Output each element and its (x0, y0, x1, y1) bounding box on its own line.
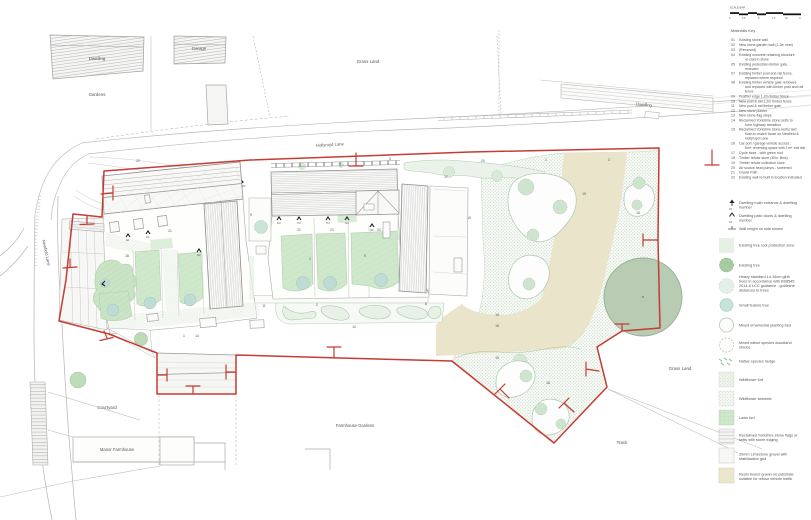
svg-text:Timber refuse collection store: Timber refuse collection store (739, 161, 785, 165)
svg-text:15: 15 (582, 192, 586, 196)
svg-text:Gardens: Gardens (89, 92, 107, 97)
svg-text:21: 21 (377, 228, 381, 232)
svg-text:Existing pedestrian timber gat: Existing pedestrian timber gate, (739, 63, 788, 67)
svg-text:Lawn turf: Lawn turf (739, 416, 756, 420)
svg-text:Cycle store - with green roof: Cycle store - with green roof (739, 151, 783, 155)
svg-text:21: 21 (731, 171, 735, 175)
svg-text:07: 07 (731, 72, 735, 76)
svg-text:Hollyroyd Lane: Hollyroyd Lane (745, 137, 768, 141)
svg-text:8: 8 (425, 302, 427, 306)
svg-text:22: 22 (136, 159, 140, 163)
svg-text:17: 17 (444, 175, 448, 179)
svg-text:Gravel Path: Gravel Path (739, 171, 758, 175)
svg-text:Existing wall re-built in loca: Existing wall re-built in location indic… (739, 176, 802, 180)
svg-text:21: 21 (168, 229, 172, 233)
svg-text:14: 14 (731, 119, 735, 123)
svg-text:Wall height on side shown: Wall height on side shown (739, 227, 783, 231)
svg-text:Dwelling main entrance & dwell: Dwelling main entrance & dwelling (739, 201, 797, 205)
svg-text:Manor Farmhouse: Manor Farmhouse (100, 447, 135, 452)
svg-text:21: 21 (297, 228, 301, 232)
svg-text:New post & rail timber gate: New post & rail timber gate (739, 104, 781, 108)
svg-text:renewed: renewed (745, 67, 758, 71)
svg-text:fence: fence (745, 90, 754, 94)
svg-text:New stone flag steps: New stone flag steps (739, 114, 772, 118)
svg-text:Reclaimed Yorkshire stone flag: Reclaimed Yorkshire stone flags or (739, 434, 798, 438)
svg-text:03: 03 (731, 48, 735, 52)
svg-text:stabilisation grid: stabilisation grid (739, 457, 766, 461)
svg-text:08: 08 (731, 81, 735, 85)
svg-text:Feather edge 1.2m timber fence: Feather edge 1.2m timber fence (739, 95, 789, 99)
svg-text:5: 5 (364, 254, 366, 258)
svg-text:1: 1 (545, 158, 547, 162)
svg-text:19: 19 (731, 161, 735, 165)
svg-text:9: 9 (250, 213, 252, 217)
svg-text:3: 3 (389, 157, 391, 161)
svg-text:21: 21 (330, 228, 334, 232)
svg-text:SCALE BAR: SCALE BAR (730, 6, 745, 10)
svg-text:New post & rail 1.2m timber fe: New post & rail 1.2m timber fence (739, 100, 792, 104)
svg-text:22: 22 (731, 176, 735, 180)
svg-text:Dwelling: Dwelling (89, 56, 106, 61)
svg-text:Small feature tree: Small feature tree (739, 304, 769, 308)
svg-text:20: 20 (481, 159, 485, 163)
svg-text:11: 11 (262, 304, 266, 308)
svg-text:distances to trees: distances to trees (739, 289, 769, 293)
svg-text:Dwelling patio doors & dwellin: Dwelling patio doors & dwelling (739, 214, 792, 218)
svg-text:10: 10 (731, 100, 735, 104)
svg-text:number: number (739, 206, 753, 210)
svg-text:01: 01 (729, 207, 733, 211)
svg-text:P4: P4 (326, 221, 330, 225)
svg-text:Air source heat pumps - screen: Air source heat pumps - screened (739, 166, 792, 170)
svg-text:20mm Limestone gravel with: 20mm Limestone gravel with (739, 453, 787, 457)
svg-text:1: 1 (183, 334, 185, 338)
svg-text:Existing timber post and rail: Existing timber post and rail fence, (739, 72, 793, 76)
svg-text:12: 12 (731, 109, 735, 113)
svg-text:Wildflower seedmix: Wildflower seedmix (739, 397, 772, 401)
svg-text:Existing timber vehicle gate r: Existing timber vehicle gate removed (739, 81, 796, 85)
svg-text:P1: P1 (146, 235, 150, 239)
svg-text:Existing tree root protection: Existing tree root protection zone (739, 244, 795, 248)
svg-text:Track: Track (617, 440, 629, 445)
svg-text:Car port / garage vehicle acce: Car port / garage vehicle access ; (739, 142, 791, 146)
svg-text:m: m (799, 17, 801, 20)
svg-text:setts with stone edging: setts with stone edging (739, 438, 778, 442)
svg-text:Existing stone wall: Existing stone wall (739, 38, 768, 42)
svg-text:New stone planter: New stone planter (739, 109, 768, 113)
svg-text:15: 15 (495, 356, 499, 360)
svg-text:18: 18 (731, 156, 735, 160)
svg-text:Courtyard: Courtyard (97, 405, 117, 410)
svg-text:04: 04 (731, 53, 735, 57)
svg-text:Native species hedge: Native species hedge (739, 360, 775, 364)
svg-text:17: 17 (731, 151, 735, 155)
svg-text:16: 16 (731, 142, 735, 146)
svg-text:Reclaimed Yorkshire stone sett: Reclaimed Yorkshire stone setts to (739, 119, 793, 123)
svg-text:Existing concrete retaining st: Existing concrete retaining structure (739, 53, 795, 57)
svg-text:13: 13 (731, 114, 735, 118)
svg-text:09: 09 (731, 95, 735, 99)
svg-text:E2: E2 (197, 253, 201, 257)
svg-text:15: 15 (495, 313, 499, 317)
svg-text:Garage: Garage (192, 46, 207, 51)
svg-text:6m+ reversing space with 1m+ e: 6m+ reversing space with 1m+ exit isle (745, 146, 805, 150)
svg-text:01: 01 (729, 220, 733, 224)
svg-text:Timber refuse store (3No. Bins: Timber refuse store (3No. Bins) (739, 156, 788, 160)
svg-text:11: 11 (731, 104, 735, 108)
svg-text:18: 18 (125, 254, 129, 258)
svg-text:Existing tree: Existing tree (739, 264, 760, 268)
svg-text:10: 10 (352, 325, 356, 329)
svg-text:Grass Land: Grass Land (357, 59, 380, 64)
svg-text:Wildflower turf: Wildflower turf (739, 378, 764, 382)
svg-text:Mixed ornamental planting bed: Mixed ornamental planting bed (739, 324, 791, 328)
svg-text:and replaced with timber post: and replaced with timber post and rail (745, 85, 803, 89)
svg-text:E4: E4 (345, 221, 349, 225)
svg-text:E5: E5 (370, 228, 374, 232)
svg-text:(Removed): (Removed) (739, 48, 756, 52)
svg-text:flush to match those on Newfie: flush to match those on Newfield & (745, 132, 800, 136)
svg-text:E1: E1 (126, 238, 130, 242)
svg-text:Materials Key: Materials Key (731, 28, 755, 33)
svg-text:15: 15 (636, 211, 640, 215)
svg-text:Farmhouse Gardens: Farmhouse Gardens (336, 423, 374, 428)
svg-text:form highway transition: form highway transition (745, 123, 781, 127)
svg-text:P2: P2 (242, 184, 246, 188)
svg-text:Reclaimed Yorkshire stone kerb: Reclaimed Yorkshire stone kerbs laid (739, 128, 796, 132)
svg-text:Mixed native species woodland: Mixed native species woodland (739, 341, 792, 345)
svg-text:suitable for refuse vehicle tr: suitable for refuse vehicle traffic (739, 477, 792, 481)
svg-text:E3: E3 (277, 221, 281, 225)
svg-text:2: 2 (316, 303, 318, 307)
svg-text:New stone garden wall (1.2m ma: New stone garden wall (1.2m max) (739, 43, 793, 47)
svg-text:Heavy standard 14-16cm girth: Heavy standard 14-16cm girth (739, 275, 790, 279)
svg-text:1: 1 (309, 257, 311, 261)
svg-text:number: number (739, 219, 753, 223)
svg-text:20: 20 (731, 166, 735, 170)
svg-text:Grass Land: Grass Land (669, 366, 692, 371)
svg-text:01: 01 (731, 38, 735, 42)
svg-text:02: 02 (731, 43, 735, 47)
svg-text:15: 15 (731, 128, 735, 132)
svg-text:3: 3 (608, 158, 610, 162)
svg-text:18: 18 (546, 381, 550, 385)
svg-text:replaced where required: replaced where required (745, 76, 783, 80)
svg-text:05: 05 (731, 63, 735, 67)
svg-text:14: 14 (195, 334, 199, 338)
svg-text:2014 & LCC guidance - guidelin: 2014 & LCC guidance - guideline (739, 284, 795, 288)
svg-text:shrubs: shrubs (739, 346, 750, 350)
svg-text:trees in accordance with BS854: trees in accordance with BS8545 (739, 280, 795, 284)
svg-text:P3: P3 (297, 221, 301, 225)
svg-text:Resin bound gravel on substrat: Resin bound gravel on substrate (739, 473, 794, 477)
svg-text:re-clad in stone: re-clad in stone (745, 58, 769, 62)
svg-text:16: 16 (495, 324, 499, 328)
